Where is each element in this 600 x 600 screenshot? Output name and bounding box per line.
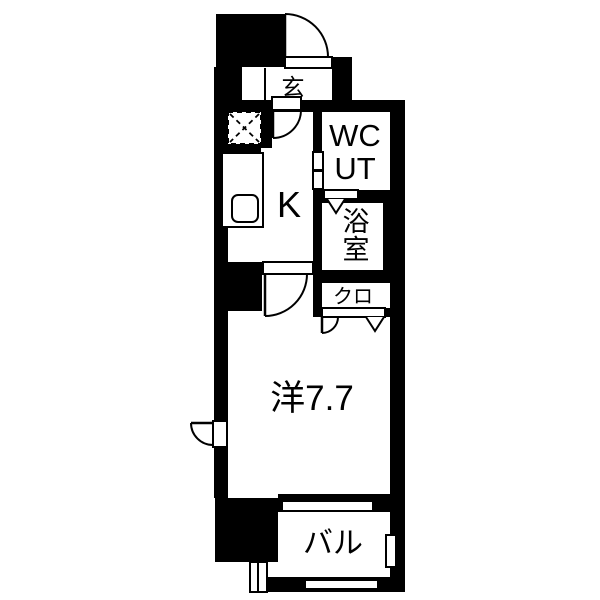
genkan-kitchen-door-arc bbox=[273, 110, 301, 138]
closet-door-arc bbox=[322, 317, 338, 333]
wall-shaft-bottom bbox=[214, 144, 261, 153]
wc-label: WC bbox=[329, 118, 381, 153]
wall-genkan-right-stub bbox=[332, 57, 352, 112]
wall-wc-left bbox=[313, 112, 322, 317]
balcony-jamb-right bbox=[258, 562, 267, 592]
wall-bottom-left-block bbox=[215, 498, 278, 562]
balcony-rail-opening bbox=[305, 580, 378, 589]
wall-top-left-block bbox=[216, 14, 285, 67]
main-room-label: 洋7.7 bbox=[270, 379, 354, 418]
balcony-label: バル bbox=[303, 527, 363, 560]
wall-right bbox=[390, 100, 405, 592]
wall-shaft-right bbox=[261, 100, 272, 148]
kitchen-sink bbox=[232, 195, 258, 222]
room-left-door-arc bbox=[191, 423, 213, 445]
balcony-wall-notch bbox=[386, 535, 396, 567]
entrance-door-arc bbox=[285, 14, 328, 57]
genkan-label: 玄 bbox=[282, 74, 305, 100]
bath-label-1: 浴 bbox=[343, 207, 370, 237]
wall-left-upper bbox=[214, 67, 228, 422]
room-left-door-opening bbox=[213, 421, 227, 447]
closet-folding-door-mark bbox=[366, 317, 384, 331]
wall-k-room-pillar bbox=[214, 262, 262, 311]
wall-bath-right-strip bbox=[383, 203, 390, 270]
wall-top-bar bbox=[214, 100, 405, 112]
wc-door-jamb-upper bbox=[313, 152, 323, 170]
bath-door-sill bbox=[324, 190, 358, 199]
kitchen-room-door-arc bbox=[265, 274, 307, 316]
ut-label: UT bbox=[334, 151, 375, 186]
kitchen-fixtures bbox=[222, 153, 263, 227]
shaft-box bbox=[228, 112, 261, 144]
wc-door-jamb-lower bbox=[313, 171, 323, 189]
kitchen-label: K bbox=[277, 184, 301, 225]
bath-label-2: 室 bbox=[343, 235, 370, 265]
kitchen-room-door-sill bbox=[263, 262, 313, 274]
closet-label: クロ bbox=[333, 285, 373, 308]
floor-plan-canvas: 玄 WC UT 浴 室 クロ K 洋7.7 バル bbox=[0, 0, 600, 600]
wall-left-lower bbox=[214, 447, 228, 498]
closet-door-sill bbox=[322, 308, 385, 317]
wall-closet-sill-right bbox=[385, 308, 393, 317]
entrance-door-sill bbox=[285, 57, 332, 68]
wall-bath-closet-divider bbox=[313, 270, 405, 283]
floor-plan: 玄 WC UT 浴 室 クロ K 洋7.7 バル bbox=[0, 0, 600, 600]
balcony-window-sill bbox=[282, 501, 373, 511]
